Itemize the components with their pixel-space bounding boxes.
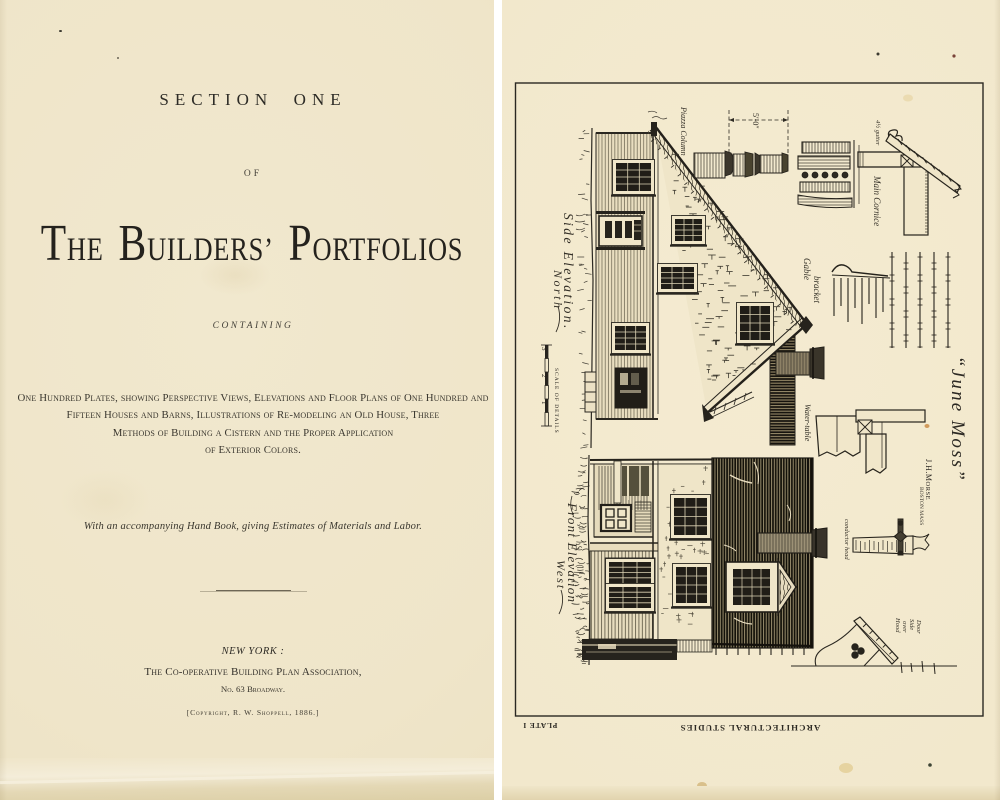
svg-text:Main Cornice: Main Cornice — [872, 175, 882, 226]
svg-text:Side: Side — [908, 619, 915, 630]
svg-text:ARCHITECTURAL STUDIES: ARCHITECTURAL STUDIES — [680, 723, 821, 733]
svg-text:BOSTON MASS: BOSTON MASS — [918, 487, 924, 525]
svg-text:over: over — [901, 621, 908, 633]
svg-text:J.H.MORSE: J.H.MORSE — [924, 459, 933, 500]
svg-text:5′-0″: 5′-0″ — [751, 113, 760, 129]
svg-text:North: North — [551, 269, 565, 311]
svg-text:Hood: Hood — [894, 617, 901, 633]
svg-text:“June Moss”: “June Moss” — [947, 356, 968, 482]
svg-text:West: West — [554, 560, 568, 590]
svg-text:Piazza Column: Piazza Column — [679, 106, 688, 156]
svg-text:Water-table: Water-table — [803, 404, 812, 442]
svg-text:Gable: Gable — [802, 258, 812, 280]
svg-text:PLATE I: PLATE I — [523, 721, 558, 730]
svg-text:Door: Door — [915, 619, 922, 634]
svg-text:SCALE OF DETAILS: SCALE OF DETAILS — [553, 368, 559, 434]
svg-text:4½ gutter: 4½ gutter — [874, 120, 881, 146]
svg-text:3: 3 — [540, 347, 548, 351]
svg-text:2: 2 — [540, 374, 548, 378]
svg-text:1: 1 — [540, 401, 548, 405]
svg-text:bracket: bracket — [812, 276, 822, 303]
svg-text:conductor head: conductor head — [843, 519, 850, 560]
